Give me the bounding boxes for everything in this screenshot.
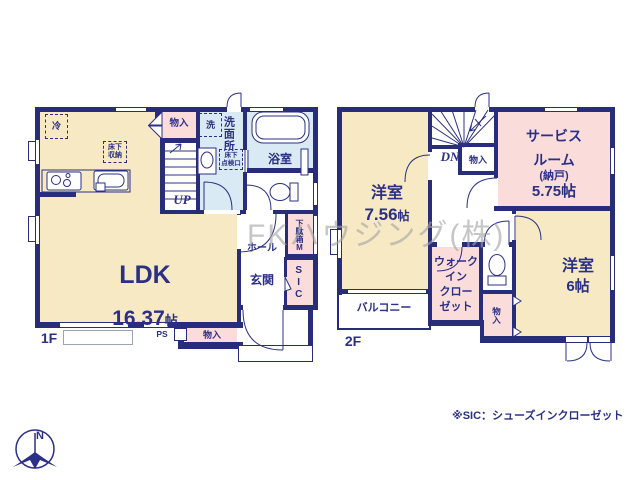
- wall: [313, 107, 318, 310]
- wic-line2: イン: [430, 271, 482, 283]
- door-arc-entrance: [243, 310, 283, 350]
- closet-stairs-label: 物入: [458, 155, 498, 165]
- window: [116, 107, 146, 112]
- compass-bird: [13, 452, 57, 469]
- wall: [479, 290, 516, 294]
- wall: [610, 107, 615, 343]
- door-opening: [243, 150, 247, 172]
- washroom-label: 洗面所: [222, 112, 234, 156]
- service-room-line2: ルーム: [504, 153, 604, 169]
- wic-line3: クロー: [430, 286, 482, 298]
- door-arc-backdoor: [227, 93, 241, 107]
- wall: [284, 257, 313, 260]
- entrance-label: 玄関: [241, 274, 283, 287]
- wall: [155, 107, 162, 118]
- door-arc-terrace-left: [566, 343, 587, 361]
- footnote-sic: ※SIC：シューズインクローゼット: [452, 410, 632, 422]
- floor2-label: 2F: [338, 334, 368, 350]
- service-room-line3: (納戸): [504, 170, 604, 182]
- terrace-door: [589, 336, 610, 343]
- door-opening: [204, 210, 240, 214]
- bedroom1-name: 洋室: [357, 185, 417, 203]
- underfloor-storage-label: 床下 収納: [108, 144, 122, 160]
- wall-kitchen-base: [38, 192, 76, 197]
- underfloor-storage: 床下 収納: [103, 141, 127, 163]
- wall: [337, 107, 342, 295]
- door-opening: [284, 277, 287, 291]
- wall: [160, 143, 165, 214]
- entrance-porch: [238, 345, 313, 362]
- wic-line1: ウォーク: [430, 256, 482, 268]
- wall: [308, 310, 313, 350]
- compass-n-label: N: [36, 430, 44, 442]
- compass-circle: [16, 430, 54, 468]
- terrace-door: [566, 336, 587, 343]
- door-opening: [243, 305, 283, 310]
- door-opening: [428, 152, 432, 180]
- service-room-line1: サービス: [504, 129, 604, 145]
- pipe-space-label: PS: [152, 330, 172, 340]
- closet-bottom-label: 物入: [187, 330, 237, 340]
- window: [610, 256, 615, 290]
- sic-label: SIC: [293, 263, 304, 303]
- washer-label: 洗: [206, 120, 215, 130]
- closet-top-label: 物入: [162, 119, 196, 130]
- watermark: FKハウジング(株): [247, 210, 505, 254]
- door-opening: [475, 107, 489, 112]
- wall: [428, 320, 484, 326]
- washer-space: 洗: [199, 113, 222, 137]
- wall: [458, 143, 498, 147]
- wall: [245, 168, 318, 173]
- fridge-label: 冷: [52, 121, 61, 131]
- wic-line4: ゼット: [430, 301, 482, 313]
- stairs-up-label: UP: [168, 193, 196, 208]
- ldk-name: LDK: [85, 261, 205, 289]
- floor1-label: 1F: [35, 331, 63, 347]
- door-opening: [512, 214, 516, 240]
- window: [545, 107, 577, 112]
- service-room-line4: 5.75帖: [504, 184, 604, 201]
- wall: [494, 107, 498, 178]
- fridge-space: 冷: [45, 114, 68, 139]
- door-arc-terrace-right: [590, 343, 611, 361]
- bathroom-label: 浴室: [258, 153, 302, 166]
- floorplan-canvas: 冷 洗 床下 収納 床下 点検口 1F LDK 16.37帖 物入 洗面所 浴室…: [0, 0, 640, 480]
- window: [250, 107, 283, 112]
- bedroom2-size: 6帖: [553, 279, 603, 296]
- balcony-label: バルコニー: [353, 302, 415, 314]
- window-sill: [28, 141, 36, 161]
- compass: [13, 430, 57, 469]
- ldk-size: 16.37帖: [85, 307, 205, 331]
- closet-small-label: 物入: [491, 298, 501, 332]
- window-balcony-slider: [348, 289, 426, 294]
- wall: [480, 320, 484, 337]
- door-arc-2f-top: [475, 93, 489, 107]
- window: [610, 148, 615, 174]
- window-sill: [28, 216, 36, 242]
- wall: [458, 171, 498, 175]
- wall: [160, 138, 198, 143]
- window: [313, 183, 318, 205]
- bedroom2-name: 洋室: [550, 258, 606, 276]
